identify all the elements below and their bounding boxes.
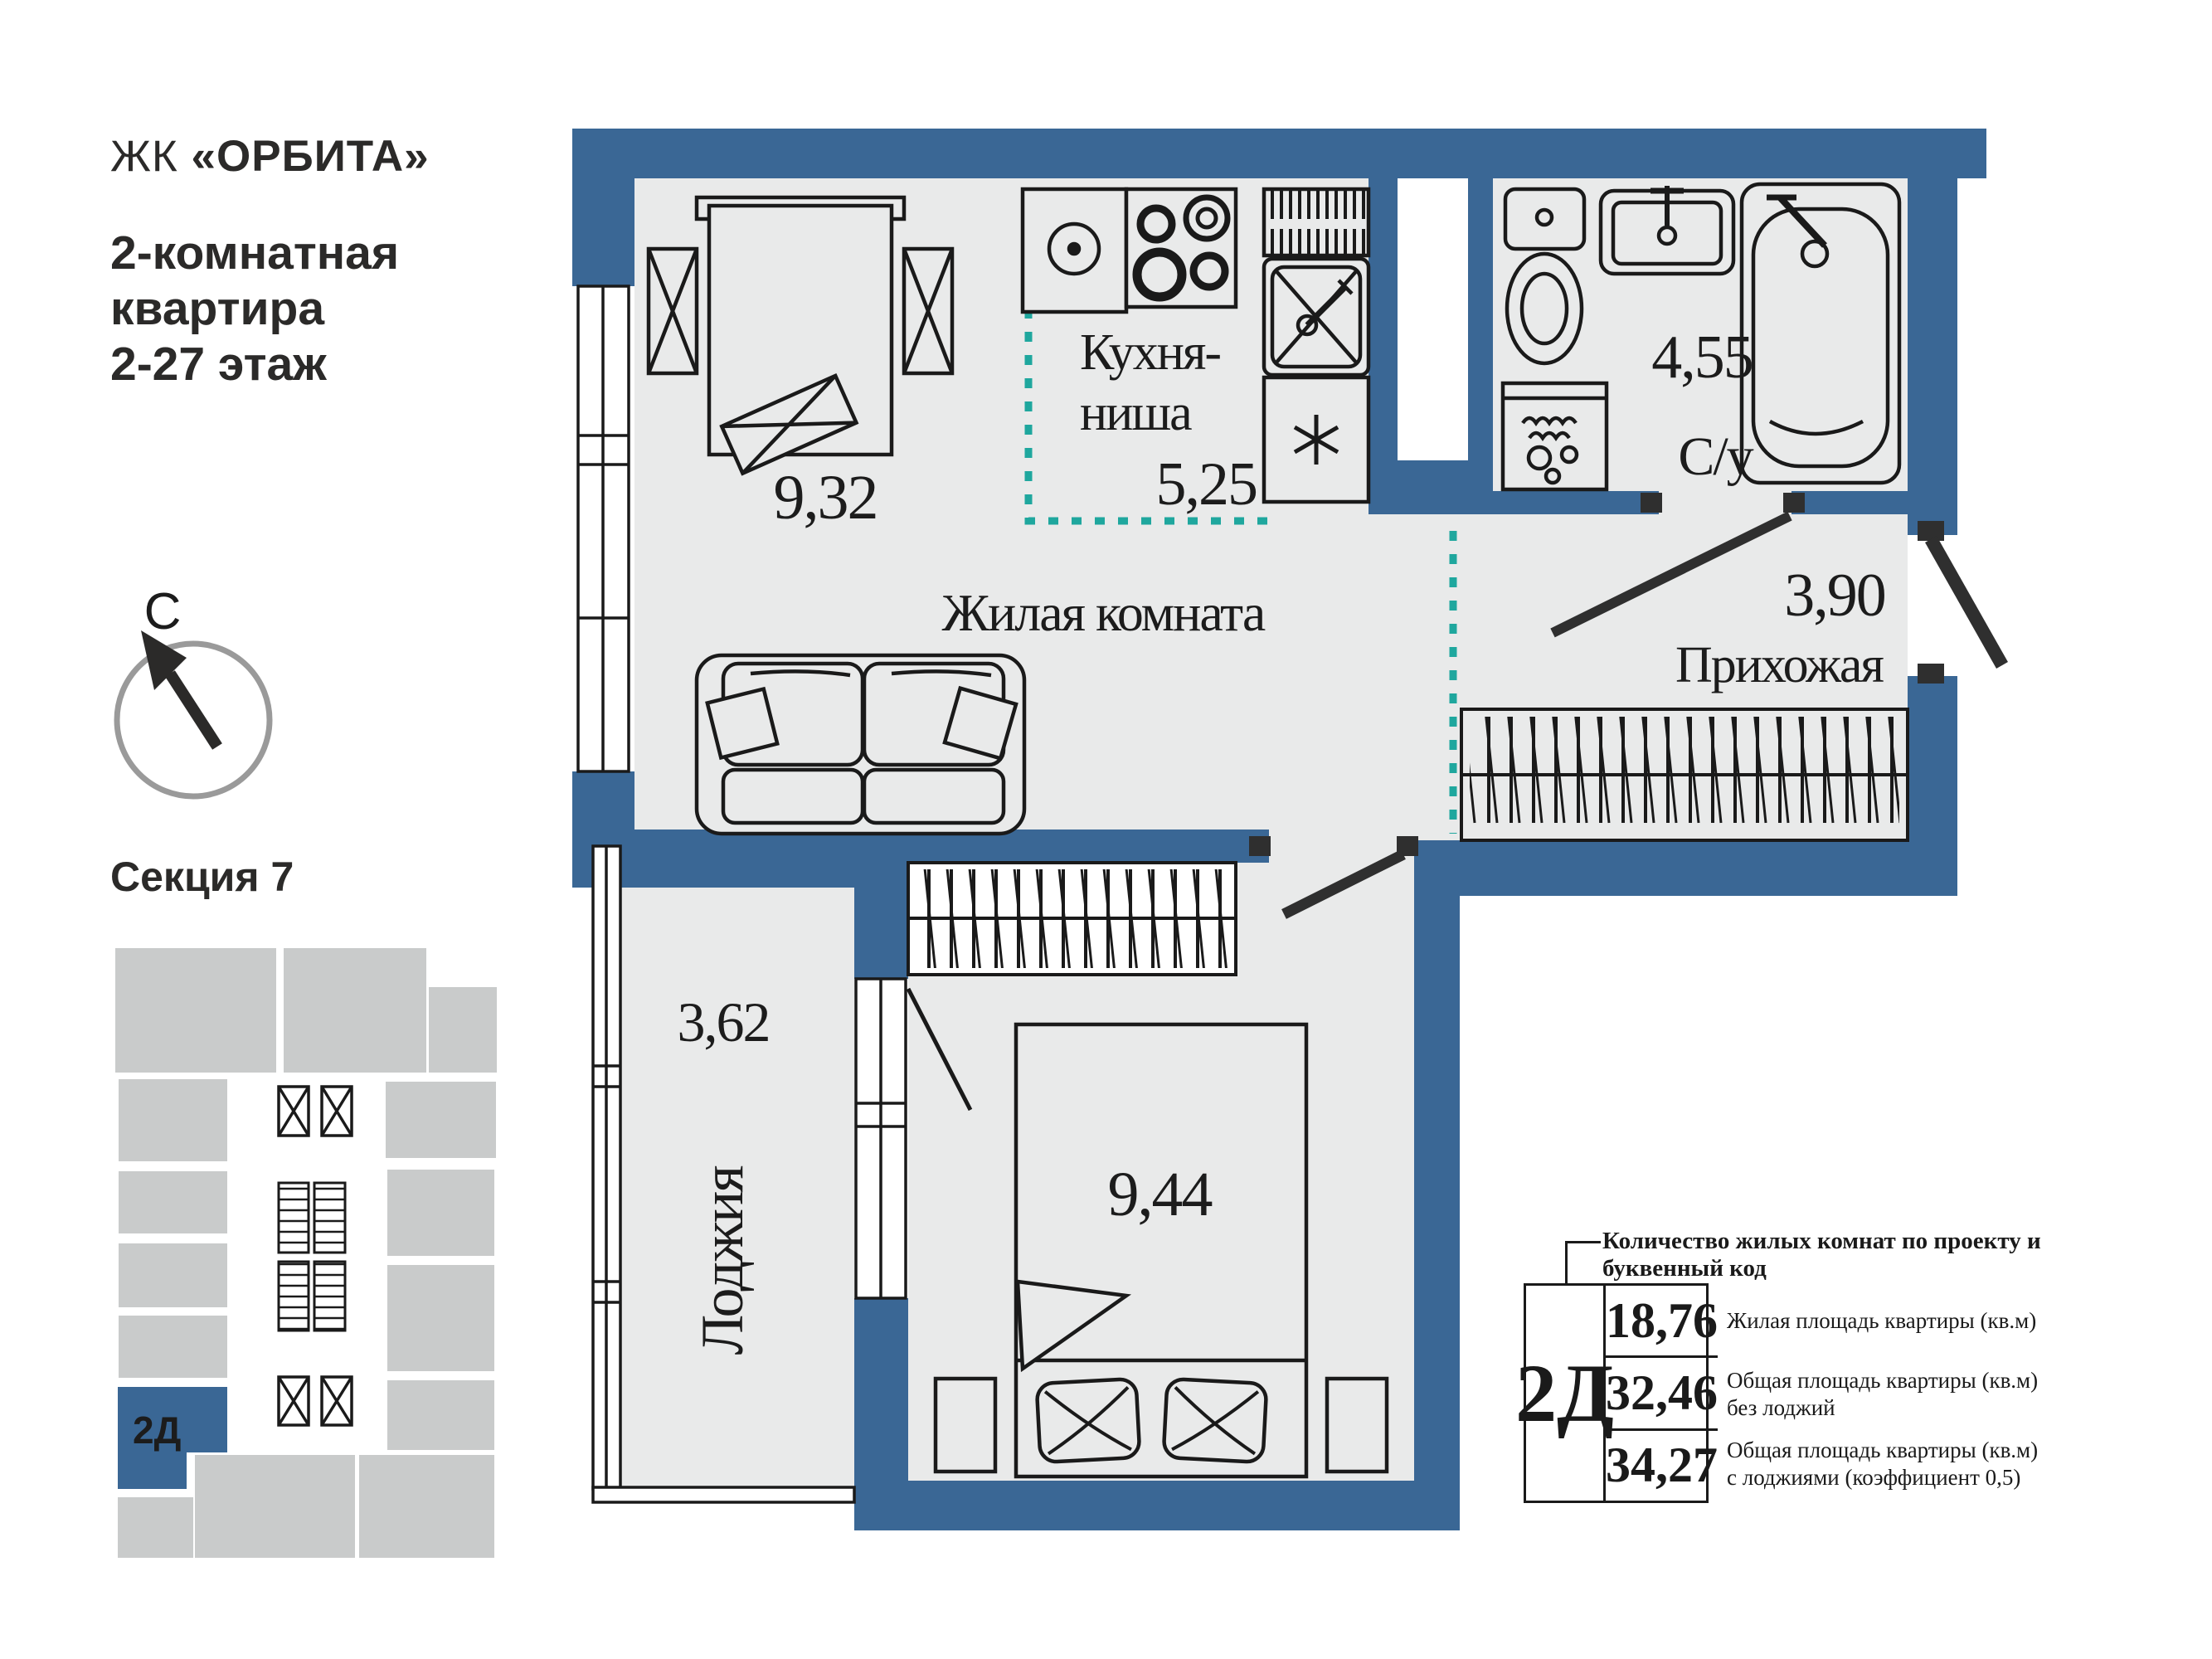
- apartment-info-table: 2Д 18,76 32,46 34,27: [1524, 1283, 1709, 1503]
- wall-left-upper: [572, 129, 634, 286]
- wall-right-upper: [1908, 129, 1957, 535]
- vent-shaft: [1398, 178, 1468, 460]
- label-line: без лоджий: [1727, 1394, 2117, 1422]
- fridge-icon: [1264, 377, 1369, 502]
- washbasin-icon: [1601, 186, 1733, 274]
- bathtub-icon: [1742, 184, 1899, 483]
- compass-arrow-tail: [170, 674, 217, 747]
- bath-area-value: 4,55: [1651, 324, 1753, 392]
- minimap-block: [429, 987, 497, 1073]
- floorplan-page: ЖК «ОРБИТА» 2-комнатная квартира 2-27 эт…: [0, 0, 2212, 1659]
- minimap-block: [195, 1455, 355, 1558]
- living-room-name: Жилая комната: [942, 583, 1266, 642]
- kitchen-area-value: 5,25: [1156, 450, 1257, 518]
- info-callout: Количество жилых комнат по проекту и бук…: [1602, 1228, 2050, 1282]
- sink-icon: [1264, 259, 1369, 375]
- wall-bottom: [854, 1481, 1460, 1530]
- minimap-block: [119, 1079, 227, 1161]
- total-area-loggia-cell: 34,27: [1606, 1428, 1718, 1501]
- section-minimap: 2Д: [115, 948, 497, 1558]
- wall-balcony-column: [854, 829, 908, 979]
- chair-icon: [904, 249, 952, 373]
- minimap-elevator-icons: [279, 1087, 352, 1425]
- minimap-block: [284, 948, 426, 1073]
- living-area-cell: 18,76: [1606, 1286, 1718, 1355]
- total-area-loggia-label: Общая площадь квартиры (кв.м) с лоджиями…: [1727, 1437, 2117, 1491]
- living-area-label: Жилая площадь квартиры (кв.м): [1727, 1307, 2117, 1335]
- washing-machine-icon: [1503, 383, 1607, 489]
- loggia-area-value: 3,62: [678, 990, 770, 1053]
- minimap-block: [387, 1170, 494, 1256]
- hallway-wardrobe-icon: [1461, 709, 1908, 840]
- kitchen-name-line1: Кухня-: [1080, 324, 1220, 381]
- minimap-block: [115, 948, 276, 1073]
- minimap-block: [387, 1380, 494, 1450]
- minimap-block: [386, 1082, 496, 1158]
- nightstand-icon: [1327, 1379, 1387, 1472]
- minimap-stairs-icons: [279, 1183, 345, 1331]
- unit-code-cell: 2Д: [1526, 1286, 1606, 1501]
- bedroom-wardrobe-icon: [908, 863, 1236, 975]
- wall-balcony-column-low: [854, 1298, 908, 1485]
- hall-name: Прихожая: [1675, 637, 1884, 693]
- loggia-name: Лоджия: [689, 1166, 756, 1355]
- entry-door: [1918, 521, 2002, 684]
- nightstand-icon: [936, 1379, 995, 1472]
- living-area-value: 9,32: [774, 463, 878, 533]
- minimap-block: [359, 1455, 494, 1558]
- label-line: Жилая площадь квартиры (кв.м): [1727, 1307, 2117, 1335]
- kitchen-name-line2: ниша: [1080, 385, 1192, 441]
- minimap-block: [119, 1243, 227, 1307]
- wall-hall-bottom: [1414, 840, 1957, 896]
- compass: С: [117, 583, 270, 796]
- label-line: с лоджиями (коэффициент 0,5): [1727, 1464, 2117, 1491]
- bed-icon: [1016, 1024, 1306, 1477]
- minimap-block: [118, 1497, 193, 1558]
- total-area-cell: 32,46: [1606, 1355, 1718, 1428]
- minimap-block: [119, 1316, 227, 1378]
- loggia-glazing-bottom: [593, 1487, 854, 1502]
- toilet-icon: [1505, 189, 1584, 363]
- label-line: Общая площадь квартиры (кв.м): [1727, 1367, 2117, 1394]
- wall-shaft-right: [1468, 178, 1493, 491]
- info-callout-connector: [1565, 1241, 1601, 1287]
- bath-name: С/у: [1678, 426, 1753, 487]
- wall-top: [572, 129, 1986, 178]
- hall-area-value: 3,90: [1784, 562, 1885, 630]
- sofa-icon: [697, 655, 1024, 834]
- minimap-unit-code: 2Д: [133, 1408, 181, 1452]
- dish-rack-icon: [1264, 189, 1369, 255]
- label-line: Общая площадь квартиры (кв.м): [1727, 1437, 2117, 1464]
- wall-bath-bottom-left: [1493, 491, 1659, 514]
- minimap-block: [387, 1265, 494, 1371]
- minimap-block: [119, 1171, 227, 1233]
- bath-door-gap: [1659, 491, 1791, 514]
- bedroom-area-value: 9,44: [1108, 1160, 1213, 1229]
- wall-bath-bottom-right: [1791, 491, 1908, 514]
- wall-shaft-bottom: [1369, 460, 1493, 514]
- wall-bedroom-right: [1414, 840, 1460, 1530]
- total-area-label: Общая площадь квартиры (кв.м) без лоджий: [1727, 1367, 2117, 1422]
- chair-icon: [649, 249, 697, 373]
- compass-north-label: С: [144, 583, 182, 640]
